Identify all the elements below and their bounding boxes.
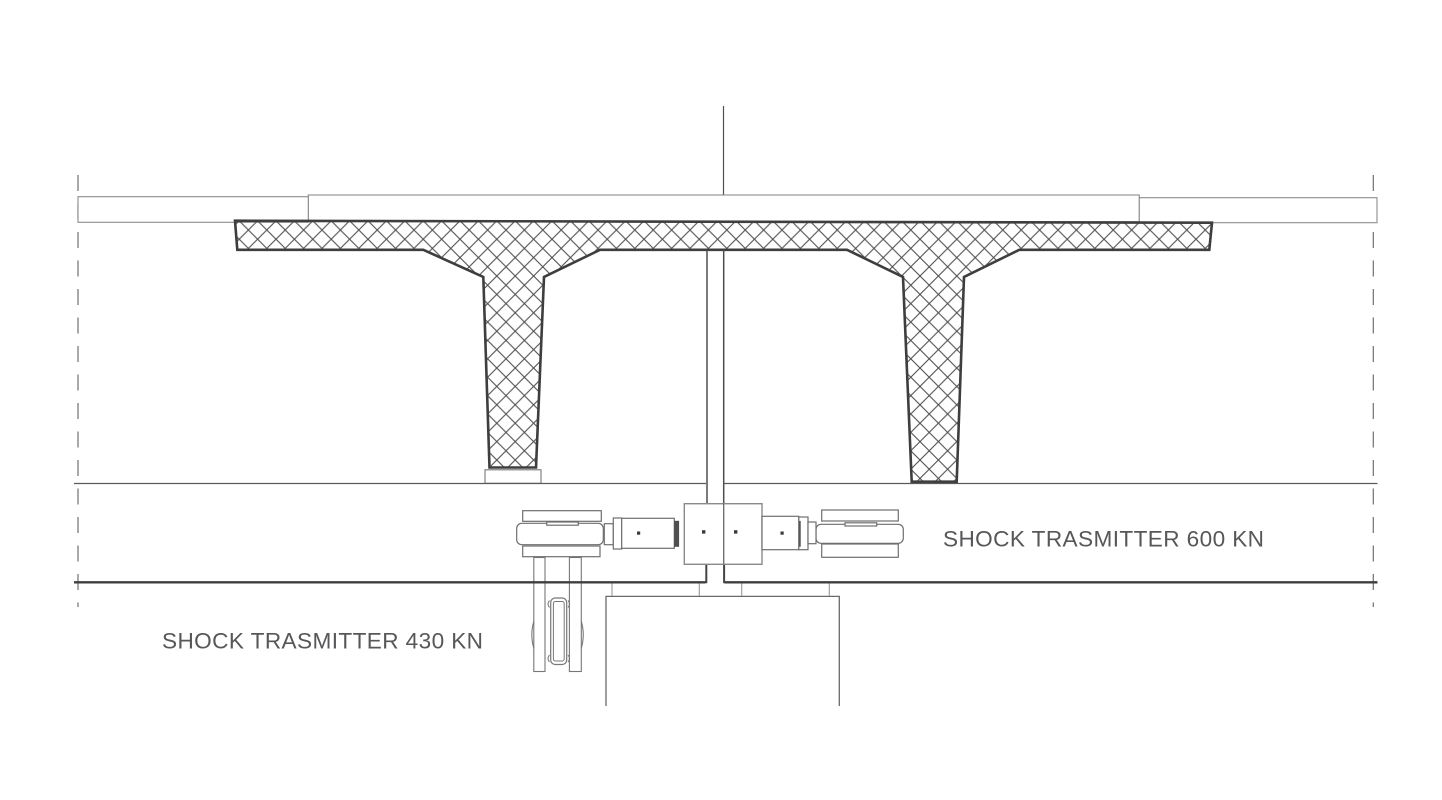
left-connector-b bbox=[613, 518, 621, 549]
right-connector-a bbox=[808, 522, 816, 544]
right-fin-top bbox=[822, 510, 899, 521]
technical-drawing-page: SHOCK TRASMITTER 600 KN SHOCK TRASMITTER… bbox=[0, 0, 1442, 800]
left-rod bbox=[622, 518, 675, 548]
label-shock-transmitter-600: SHOCK TRASMITTER 600 KN bbox=[943, 527, 1264, 552]
left-fin-bottom bbox=[523, 546, 600, 557]
right-cylinder bbox=[816, 524, 903, 543]
box-pin-right bbox=[734, 530, 737, 533]
left-bearing-pad bbox=[485, 470, 541, 484]
left-cylinder-band bbox=[547, 522, 579, 525]
right-rod-pin bbox=[781, 532, 784, 535]
right-rod bbox=[762, 516, 799, 549]
left-dark-band bbox=[675, 521, 679, 546]
bearing-plinth-ticks bbox=[612, 584, 829, 596]
left-connector-a bbox=[604, 524, 613, 545]
right-cylinder-band bbox=[845, 523, 877, 526]
right-fin-bottom bbox=[822, 544, 899, 557]
shock-transmitter-right-unit bbox=[762, 510, 903, 557]
shock-transmitter-left-unit bbox=[517, 511, 679, 557]
central-joint-box bbox=[684, 504, 762, 565]
pavement-right bbox=[1139, 198, 1377, 223]
expansion-joint-lines bbox=[707, 250, 724, 504]
pavement-center bbox=[308, 195, 1139, 222]
pendulum-capsule-inner bbox=[553, 602, 564, 662]
left-rod-pin bbox=[637, 532, 640, 535]
pavement-left bbox=[78, 197, 308, 223]
pier-outline bbox=[606, 596, 839, 706]
joint-tongue bbox=[706, 563, 724, 583]
left-fin-top bbox=[523, 511, 602, 522]
label-shock-transmitter-430: SHOCK TRASMITTER 430 KN bbox=[162, 628, 483, 653]
box-pin-left bbox=[702, 530, 705, 533]
pavement-band bbox=[78, 195, 1377, 223]
left-cylinder bbox=[517, 523, 604, 544]
bridge-joint-cross-section-drawing: SHOCK TRASMITTER 600 KN SHOCK TRASMITTER… bbox=[0, 0, 1442, 800]
